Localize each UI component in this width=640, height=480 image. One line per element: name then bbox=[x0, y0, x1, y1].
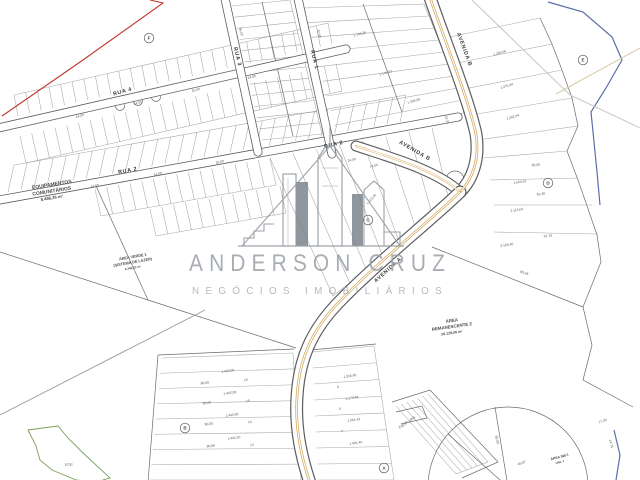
watermark-title: ANDERSON CRUZ bbox=[189, 250, 451, 277]
lot-divider-line bbox=[313, 363, 377, 368]
lot-divider-line bbox=[95, 76, 99, 97]
lot-divider-line bbox=[125, 112, 131, 139]
dimension-annotation: 1.442,10 bbox=[227, 435, 241, 441]
lot-divider-line bbox=[200, 52, 204, 73]
lot-divider-line bbox=[252, 89, 311, 95]
lot-divider-line bbox=[348, 104, 354, 131]
lot-divider-line bbox=[107, 187, 113, 214]
lot-divider-line bbox=[269, 118, 275, 145]
dimension-annotation: 14,00 bbox=[75, 113, 84, 119]
lot-divider-line bbox=[255, 101, 315, 107]
streets-layer bbox=[0, 0, 477, 480]
lot-divider-line bbox=[335, 107, 341, 134]
block-letter: F bbox=[148, 36, 151, 41]
lot-divider-line bbox=[232, 0, 290, 6]
lot-divider-line bbox=[245, 192, 251, 219]
dimension-annotation: 14,00 bbox=[247, 74, 256, 80]
area-name-label: ÁREA INST. bbox=[550, 452, 570, 462]
lot-divider-line bbox=[235, 164, 241, 191]
dimension-annotation: 1.339,56 bbox=[407, 97, 421, 105]
dimension-annotation: EQUIP. URB. bbox=[398, 415, 417, 430]
dimension-annotation: 1.173,46 bbox=[345, 395, 359, 401]
lot-divider-line bbox=[165, 177, 171, 204]
lot-divider-line bbox=[150, 209, 156, 236]
stream-blue-line bbox=[548, 2, 622, 480]
dimension-annotation: 2.114,04 bbox=[510, 207, 524, 213]
lot-divider-line bbox=[282, 116, 288, 143]
lot-divider-line bbox=[247, 42, 251, 63]
lot-divider-line bbox=[114, 115, 120, 142]
subdivision-plan-image: RUA 4RUA 2RUA 2RUA 3RUA 1AVENIDA BAVENID… bbox=[0, 0, 640, 480]
block-letter: A bbox=[382, 466, 386, 471]
lot-divider-line bbox=[177, 175, 183, 202]
lot-divider-line bbox=[374, 100, 380, 127]
lot-divider-line bbox=[191, 132, 197, 159]
dimension-annotation: 14 bbox=[248, 420, 252, 424]
lot-divider-line bbox=[177, 58, 181, 79]
lot-divider-line bbox=[254, 83, 260, 110]
lot-divider-line bbox=[188, 55, 192, 76]
lot-block bbox=[396, 394, 488, 474]
lot-divider-line bbox=[247, 162, 253, 189]
lot-divider-line bbox=[95, 189, 101, 216]
lot-divider-line bbox=[188, 172, 194, 199]
lot-divider-line bbox=[61, 84, 65, 105]
lot-divider-line bbox=[233, 194, 239, 221]
lot-divider-line bbox=[149, 107, 155, 134]
block-letter: E bbox=[581, 58, 584, 63]
dimension-annotation: 80,06 bbox=[206, 443, 215, 448]
green-area-outline bbox=[28, 426, 110, 480]
dimension-annotation: 81,36 bbox=[536, 192, 545, 197]
lot-block bbox=[150, 186, 286, 236]
lot-divider-line bbox=[223, 47, 227, 68]
subdivision-map: RUA 4RUA 2RUA 2RUA 3RUA 1AVENIDA BAVENID… bbox=[0, 0, 640, 480]
lot-divider-line bbox=[73, 153, 79, 180]
dimension-annotation: 5 bbox=[339, 407, 342, 411]
lot-divider-line bbox=[172, 101, 178, 128]
dimension-annotation: 17,30 bbox=[598, 418, 607, 425]
lot-divider-line bbox=[270, 158, 276, 185]
avenue-a bbox=[297, 192, 460, 480]
lot-divider-line bbox=[235, 11, 293, 17]
lot-divider-line bbox=[240, 34, 299, 40]
lot-divider-line bbox=[142, 181, 148, 208]
lot-divider-line bbox=[153, 179, 159, 206]
lot-divider-line bbox=[197, 201, 203, 228]
lot-divider-line bbox=[162, 207, 168, 234]
lot-divider-line bbox=[221, 196, 227, 223]
dimension-annotation: 14,00 bbox=[153, 171, 162, 177]
lot-divider-line bbox=[315, 413, 384, 416]
green-area-label: ETE bbox=[65, 462, 73, 467]
lot-divider-line bbox=[137, 109, 143, 136]
dimension-annotation: 15 bbox=[246, 399, 250, 403]
lot-block bbox=[14, 23, 332, 116]
dimension-annotation: 81,76 bbox=[544, 234, 553, 239]
lot-back-line bbox=[101, 185, 276, 216]
lot-divider-line bbox=[174, 205, 180, 232]
block-letter: B bbox=[183, 426, 187, 431]
dimension-annotation: 1.289,06 bbox=[493, 49, 507, 57]
lot-divider-line bbox=[155, 432, 299, 434]
lot-divider-line bbox=[139, 142, 145, 169]
dimension-annotation: 45,87 bbox=[517, 460, 526, 466]
dimension-annotation: 6 bbox=[337, 385, 340, 389]
lot-divider-line bbox=[256, 190, 262, 217]
dimension-annotation: 14,00 bbox=[133, 100, 142, 106]
lot-divider-line bbox=[432, 128, 450, 205]
lot-divider-line bbox=[32, 133, 38, 160]
watermark-subtitle: NEGÓCIOS IMOBILIÁRIOS bbox=[192, 284, 448, 297]
lot-divider-line bbox=[153, 448, 299, 449]
dimension-annotation: 1.442,00 bbox=[223, 390, 237, 396]
lot-divider-line bbox=[154, 63, 158, 84]
lot-divider-line bbox=[86, 151, 92, 178]
lot-divider-line bbox=[336, 64, 342, 91]
dimension-annotation: 24,00 bbox=[347, 157, 356, 163]
lot-divider-line bbox=[289, 75, 295, 102]
dimension-annotation: 80,00 bbox=[200, 380, 209, 385]
lot-divider-line bbox=[67, 125, 73, 152]
street-rua-4 bbox=[0, 49, 346, 129]
dimension-annotation: 4 bbox=[341, 429, 344, 433]
dimension-annotation: 1.141,87 bbox=[379, 69, 393, 77]
lot-divider-line bbox=[185, 203, 191, 230]
lot-divider-line bbox=[26, 92, 30, 113]
dimension-annotation: 25,00 bbox=[191, 87, 200, 93]
lot-divider-line bbox=[20, 136, 26, 163]
lot-divider-line bbox=[317, 447, 390, 449]
lot-divider-line bbox=[178, 135, 184, 162]
dimension-annotation: 3.193,46 bbox=[500, 242, 514, 248]
lot-divider-line bbox=[301, 72, 307, 99]
lot-divider-line bbox=[158, 401, 297, 404]
lot-divider-line bbox=[196, 96, 202, 123]
lot-back-line bbox=[26, 91, 342, 163]
lot-divider-line bbox=[43, 131, 49, 158]
lot-divider-line bbox=[79, 123, 85, 150]
dimension-annotation: 1.061,42 bbox=[347, 417, 361, 423]
lot-divider-line bbox=[258, 39, 262, 60]
lot-back-line bbox=[456, 462, 488, 474]
dimension-annotation: 1.146,26 bbox=[353, 30, 367, 38]
dimension-annotation: 1.061,40 bbox=[349, 440, 363, 446]
lot-divider-line bbox=[212, 50, 216, 71]
lot-divider-line bbox=[316, 430, 387, 432]
dimension-annotation: 65,00 bbox=[494, 435, 500, 444]
lot-divider-line bbox=[258, 160, 264, 187]
lot-divider-line bbox=[217, 128, 223, 155]
dimension-annotation: 1.275,44 bbox=[500, 82, 514, 90]
lot-divider-line bbox=[207, 93, 213, 120]
dimension-annotation: 16 bbox=[244, 378, 248, 382]
lot-divider-line bbox=[200, 170, 206, 197]
lot-divider-line bbox=[107, 74, 111, 95]
lot-divider-line bbox=[231, 88, 237, 115]
lot-divider-line bbox=[49, 87, 53, 108]
lot-divider-line bbox=[314, 380, 380, 385]
dimension-annotation: 13 bbox=[250, 443, 254, 447]
dimension-annotation: 1.316,48 bbox=[343, 373, 357, 379]
lot-divider-line bbox=[55, 128, 61, 155]
block-letter: D bbox=[546, 181, 550, 186]
lot-divider-line bbox=[237, 22, 295, 28]
lot-divider-line bbox=[184, 99, 190, 126]
dimension-annotation: 85,00 bbox=[531, 162, 540, 167]
dimension-annotation: 80,00 bbox=[202, 400, 211, 405]
lot-divider-line bbox=[209, 199, 215, 226]
lot-divider-line bbox=[130, 183, 136, 210]
avenue-b-branch bbox=[356, 146, 460, 192]
lot-divider-line bbox=[317, 463, 391, 464]
lot-divider-line bbox=[159, 385, 295, 389]
lot-divider-line bbox=[99, 149, 105, 176]
lot-divider-line bbox=[212, 168, 218, 195]
dimension-annotation: 1.504,61 bbox=[513, 179, 527, 185]
lot-divider-line bbox=[72, 82, 76, 103]
lot-divider-line bbox=[60, 156, 66, 183]
contour-gray-lines bbox=[0, 0, 640, 415]
lot-divider-line bbox=[84, 79, 88, 100]
lot-block bbox=[312, 346, 394, 480]
dimension-annotation: 83,45 bbox=[520, 270, 529, 276]
lot-divider-line bbox=[37, 90, 41, 111]
dimension-annotation: 1.442,00 bbox=[225, 412, 239, 418]
dimension-annotation: 1.242,04 bbox=[506, 113, 520, 121]
area-name-label: 26.129,06 m² bbox=[441, 329, 464, 336]
lot-divider-line bbox=[223, 166, 229, 193]
lot-divider-line bbox=[102, 117, 108, 144]
lot-divider-line bbox=[230, 125, 236, 152]
lot-divider-line bbox=[152, 464, 301, 465]
lot-divider-line bbox=[260, 123, 320, 129]
dimension-annotation: 14,74 bbox=[608, 439, 614, 448]
lot-divider-line bbox=[152, 139, 158, 166]
dimension-annotation: 74,00 bbox=[369, 163, 378, 169]
lot-divider-line bbox=[219, 91, 225, 118]
lot-divider-line bbox=[257, 112, 317, 118]
lot-divider-line bbox=[361, 102, 367, 129]
dimension-annotation: 14,00 bbox=[90, 183, 99, 189]
lot-divider-line bbox=[118, 185, 124, 212]
lot-divider-line bbox=[204, 130, 210, 157]
lot-divider-line bbox=[142, 66, 146, 87]
dimension-annotation: 1.442,00 bbox=[221, 368, 235, 374]
dimension-annotation: 80,00 bbox=[204, 421, 213, 426]
dimension-annotation: 36,05 bbox=[238, 27, 244, 36]
lot-divider-line bbox=[387, 97, 393, 124]
lot-divider-line bbox=[165, 137, 171, 164]
lot-divider-line bbox=[250, 78, 309, 84]
lot-divider-line bbox=[328, 23, 332, 44]
lot-divider-line bbox=[90, 120, 96, 147]
lot-divider-line bbox=[21, 163, 27, 190]
lot-divider-line bbox=[165, 60, 169, 81]
lot-divider-line bbox=[8, 165, 14, 192]
avenue-b bbox=[428, 0, 477, 192]
lot-divider-line bbox=[160, 104, 166, 131]
lot-divider-line bbox=[309, 111, 315, 138]
lot-back-line bbox=[374, 346, 394, 480]
lot-divider-line bbox=[281, 34, 285, 55]
